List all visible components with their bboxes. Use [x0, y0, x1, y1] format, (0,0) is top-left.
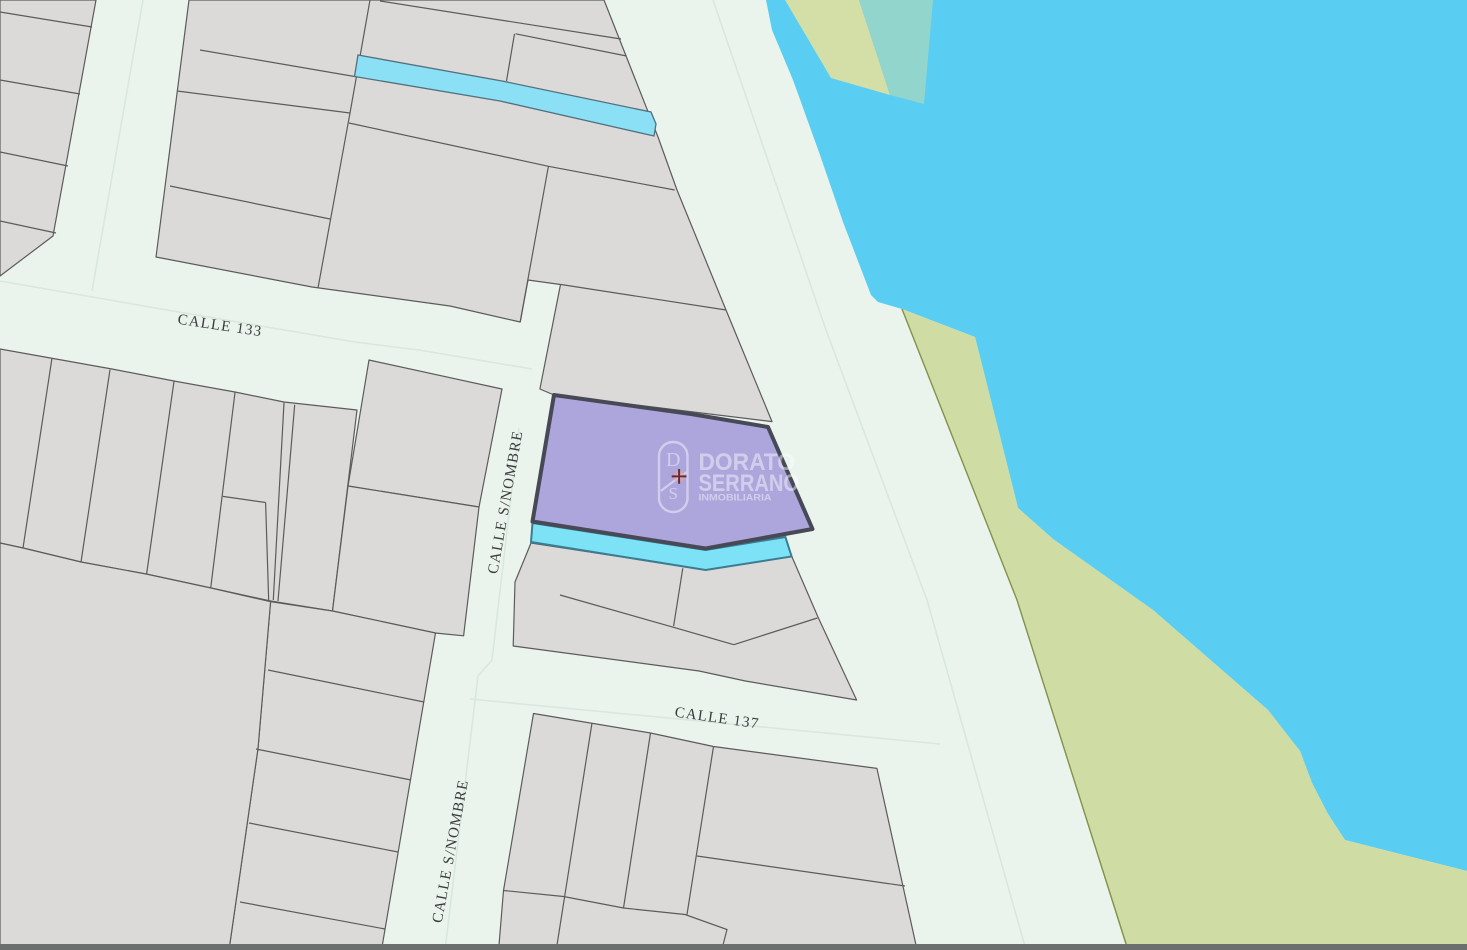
- svg-text:INMOBILIARIA: INMOBILIARIA: [699, 493, 773, 503]
- svg-text:S: S: [669, 484, 678, 503]
- svg-text:D: D: [666, 449, 680, 471]
